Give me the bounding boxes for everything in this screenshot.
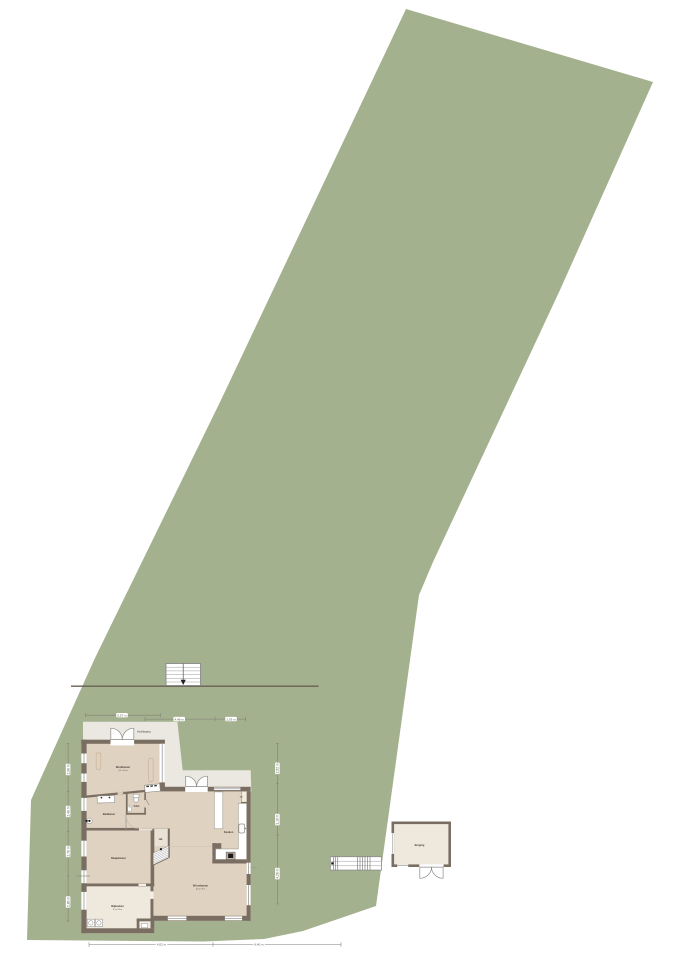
svg-text:Bijkeuken: Bijkeuken bbox=[111, 904, 124, 908]
svg-text:2,48 m: 2,48 m bbox=[66, 806, 70, 816]
svg-text:Hal: Hal bbox=[159, 839, 163, 841]
svg-text:4,28 m: 4,28 m bbox=[276, 868, 280, 878]
svg-text:Keuken: Keuken bbox=[224, 830, 234, 834]
svg-text:4,1 x 2,9 m: 4,1 x 2,9 m bbox=[118, 770, 128, 772]
svg-text:Slaapkamer: Slaapkamer bbox=[111, 856, 126, 860]
svg-text:4,48 m: 4,48 m bbox=[175, 717, 185, 721]
svg-text:3,1 x 2,9 m: 3,1 x 2,9 m bbox=[113, 909, 123, 911]
svg-text:1 m²: 1 m² bbox=[143, 919, 148, 922]
svg-text:2,78 m: 2,78 m bbox=[66, 846, 70, 856]
svg-text:6,4 x 7,3 m: 6,4 x 7,3 m bbox=[196, 889, 206, 891]
svg-text:2,52 m: 2,52 m bbox=[276, 763, 280, 773]
svg-text:4,02 m: 4,02 m bbox=[157, 943, 167, 947]
svg-text:3,19 m: 3,19 m bbox=[276, 814, 280, 824]
svg-text:2,98 m: 2,98 m bbox=[66, 764, 70, 774]
svg-text:Berging: Berging bbox=[415, 843, 425, 847]
svg-text:Werkkamer: Werkkamer bbox=[116, 765, 130, 769]
svg-text:2,80 m: 2,80 m bbox=[66, 897, 70, 907]
svg-text:2,03 m: 2,03 m bbox=[226, 717, 236, 721]
svg-text:6,40 m: 6,40 m bbox=[254, 943, 264, 947]
svg-text:5,57 m: 5,57 m bbox=[117, 713, 127, 717]
svg-text:Woonkamer: Woonkamer bbox=[193, 884, 208, 888]
svg-text:Badkamer: Badkamer bbox=[103, 812, 116, 816]
svg-text:Hoofdingang: Hoofdingang bbox=[137, 731, 151, 734]
svg-text:Toilet: Toilet bbox=[133, 805, 139, 808]
